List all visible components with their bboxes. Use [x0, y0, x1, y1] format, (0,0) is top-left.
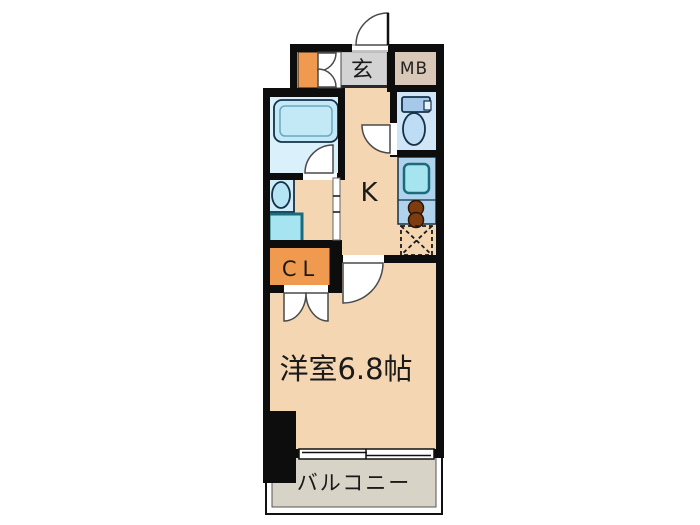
- closet-label: CL: [282, 257, 320, 281]
- floorplan-canvas: 玄 MB K CL 洋室6.8帖 バルコニー: [0, 0, 700, 525]
- entrance-step-line: [340, 85, 387, 88]
- shoe-cabinet: [298, 52, 319, 88]
- washing-machine-pan: [269, 214, 302, 244]
- toilet-flush-handle: [424, 101, 431, 110]
- main-room-label: 洋室6.8帖: [279, 352, 412, 386]
- entrance-label: 玄: [351, 58, 373, 83]
- balcony-window: [299, 449, 434, 459]
- washbasin-bowl: [272, 182, 290, 208]
- floorplan-drawing: 玄 MB K CL 洋室6.8帖 バルコニー: [0, 0, 700, 525]
- washroom-sliding-door: [333, 178, 340, 240]
- pillar: [263, 411, 296, 483]
- bathroom-fixtures: [274, 100, 338, 142]
- kitchen-sink: [404, 164, 429, 193]
- entrance-door-swing: [356, 13, 388, 45]
- kitchen-label: K: [360, 178, 378, 208]
- meter-box-label: MB: [400, 59, 428, 79]
- toilet-bowl: [403, 113, 425, 145]
- balcony-label: バルコニー: [297, 471, 412, 495]
